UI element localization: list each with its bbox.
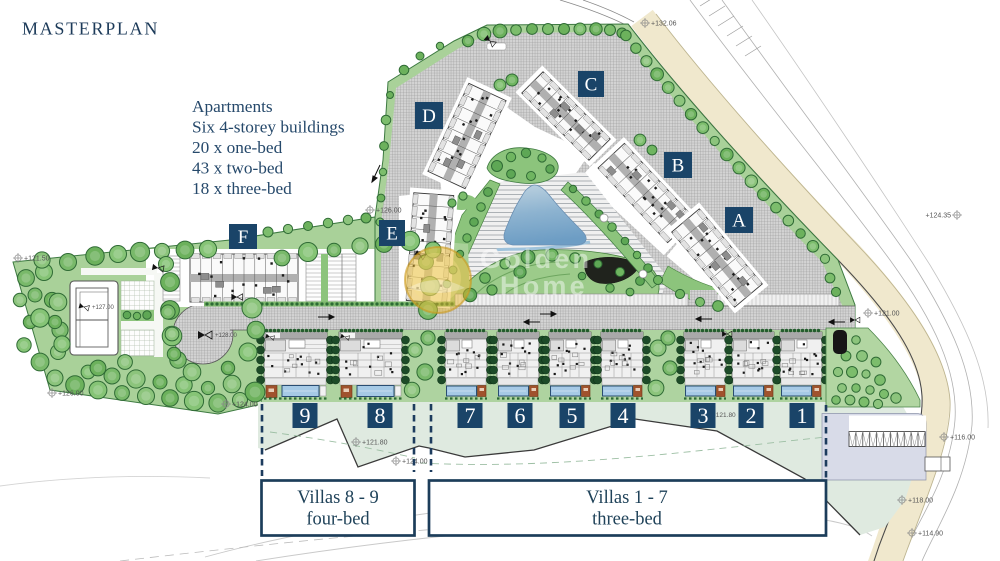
svg-text:F: F	[238, 227, 249, 248]
svg-text:four-bed: four-bed	[306, 510, 370, 530]
svg-text:E: E	[386, 223, 398, 244]
svg-text:18 x three-bed: 18 x three-bed	[192, 179, 292, 198]
svg-text:+128.00: +128.00	[215, 333, 238, 339]
svg-text:8: 8	[375, 403, 386, 428]
svg-text:+121.50: +121.50	[24, 256, 50, 263]
svg-text:20 x one-bed: 20 x one-bed	[192, 138, 283, 157]
svg-text:three-bed: three-bed	[592, 510, 663, 530]
svg-text:Apartments: Apartments	[192, 97, 273, 116]
svg-text:+114.90: +114.90	[918, 531, 943, 538]
svg-text:+121.80: +121.80	[712, 412, 736, 419]
svg-text:MASTERPLAN: MASTERPLAN	[22, 19, 159, 39]
svg-text:6: 6	[515, 403, 526, 428]
svg-text:+124.00: +124.00	[232, 402, 258, 409]
svg-text:+124.35: +124.35	[926, 213, 952, 220]
svg-text:B: B	[672, 155, 685, 176]
svg-text:+132.06: +132.06	[651, 21, 677, 28]
svg-text:7: 7	[465, 403, 476, 428]
svg-text:+126.00: +126.00	[58, 391, 84, 398]
svg-text:9: 9	[300, 403, 311, 428]
svg-text:3: 3	[698, 403, 709, 428]
svg-text:43 x two-bed: 43 x two-bed	[192, 159, 284, 178]
svg-text:+121.80: +121.80	[362, 440, 388, 447]
svg-text:+118.00: +118.00	[908, 498, 933, 505]
svg-text:+121.00: +121.00	[874, 311, 900, 318]
svg-text:+127.00: +127.00	[92, 305, 115, 311]
svg-text:2: 2	[746, 403, 757, 428]
svg-text:Golden: Golden	[480, 244, 592, 274]
svg-text:Villas 1 - 7: Villas 1 - 7	[586, 488, 668, 508]
svg-text:+126.00: +126.00	[376, 208, 402, 215]
svg-text:D: D	[422, 106, 436, 127]
svg-text:C: C	[585, 74, 598, 95]
svg-text:Home: Home	[500, 271, 588, 301]
svg-text:A: A	[732, 210, 746, 231]
svg-text:5: 5	[567, 403, 578, 428]
svg-text:4: 4	[618, 403, 629, 428]
svg-text:+116.00: +116.00	[950, 435, 975, 442]
svg-text:Six 4-storey buildings: Six 4-storey buildings	[192, 118, 345, 137]
svg-text:1: 1	[797, 403, 808, 428]
svg-text:Villas 8 - 9: Villas 8 - 9	[297, 488, 379, 508]
